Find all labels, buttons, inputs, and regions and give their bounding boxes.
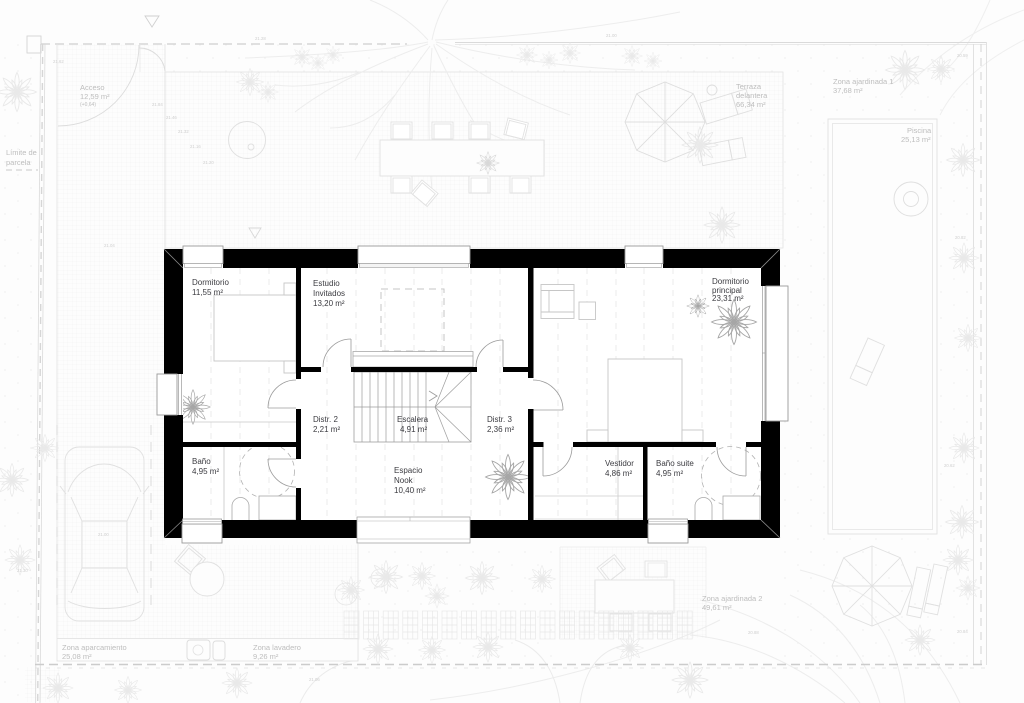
svg-text:Terraza: Terraza	[736, 82, 762, 91]
svg-text:Invitados: Invitados	[313, 289, 345, 298]
svg-text:4,86 m²: 4,86 m²	[605, 469, 632, 478]
svg-text:21.28: 21.28	[255, 36, 266, 41]
svg-text:21.16: 21.16	[190, 144, 201, 149]
svg-text:21.06: 21.06	[309, 677, 320, 682]
svg-text:Distr. 3: Distr. 3	[487, 415, 512, 424]
svg-text:20.62: 20.62	[944, 463, 955, 468]
svg-text:21.30: 21.30	[17, 568, 28, 573]
svg-text:Baño: Baño	[192, 457, 211, 466]
svg-text:delantera: delantera	[736, 91, 768, 100]
svg-text:21.20: 21.20	[203, 160, 214, 165]
svg-text:25,08 m²: 25,08 m²	[62, 652, 92, 661]
svg-text:21.84: 21.84	[152, 102, 163, 107]
svg-text:25,13 m²: 25,13 m²	[901, 135, 931, 144]
svg-text:9,26 m²: 9,26 m²	[253, 652, 279, 661]
svg-text:66,34 m²: 66,34 m²	[736, 100, 766, 109]
svg-text:20.88: 20.88	[748, 630, 759, 635]
svg-text:Dormitorio: Dormitorio	[192, 278, 229, 287]
svg-text:21.00: 21.00	[98, 532, 109, 537]
svg-text:21.00: 21.00	[606, 33, 617, 38]
svg-text:Estudio: Estudio	[313, 279, 340, 288]
svg-text:Dormitorio: Dormitorio	[712, 277, 749, 286]
svg-text:49,61 m²: 49,61 m²	[702, 603, 732, 612]
svg-text:Límite de: Límite de	[6, 148, 37, 157]
svg-text:20.84: 20.84	[957, 629, 968, 634]
svg-text:10,40 m²: 10,40 m²	[394, 486, 426, 495]
svg-text:20.82: 20.82	[955, 235, 966, 240]
svg-text:2,21 m²: 2,21 m²	[313, 425, 340, 434]
svg-text:Zona ajardinada 1: Zona ajardinada 1	[833, 77, 893, 86]
svg-text:21.62: 21.62	[53, 59, 64, 64]
svg-text:11,55 m²: 11,55 m²	[192, 288, 223, 297]
svg-text:4,95 m²: 4,95 m²	[656, 469, 683, 478]
svg-text:4,95 m²: 4,95 m²	[192, 467, 219, 476]
svg-text:Vestidor: Vestidor	[605, 459, 634, 468]
svg-text:Zona ajardinada 2: Zona ajardinada 2	[702, 594, 762, 603]
svg-text:Distr. 2: Distr. 2	[313, 415, 338, 424]
svg-text:parcela: parcela	[6, 158, 31, 167]
svg-text:Nook: Nook	[394, 476, 414, 485]
svg-text:Zona lavadero: Zona lavadero	[253, 643, 301, 652]
svg-text:21.46: 21.46	[166, 115, 177, 120]
svg-text:Baño suite: Baño suite	[656, 459, 694, 468]
svg-text:Escalera: Escalera	[397, 415, 429, 424]
svg-text:37,68 m²: 37,68 m²	[833, 86, 863, 95]
svg-text:2,36 m²: 2,36 m²	[487, 425, 514, 434]
svg-text:21.32: 21.32	[178, 129, 189, 134]
svg-text:(+0,64): (+0,64)	[80, 102, 96, 108]
svg-text:12,59 m²: 12,59 m²	[80, 92, 110, 101]
svg-text:Acceso: Acceso	[80, 83, 105, 92]
svg-text:4,91 m²: 4,91 m²	[400, 425, 427, 434]
svg-text:Zona aparcamiento: Zona aparcamiento	[62, 643, 127, 652]
svg-text:23,31 m²: 23,31 m²	[712, 294, 744, 303]
svg-text:20.59: 20.59	[957, 53, 968, 58]
svg-text:Piscina: Piscina	[907, 126, 932, 135]
svg-text:13,20 m²: 13,20 m²	[313, 299, 345, 308]
svg-text:21.04: 21.04	[104, 243, 115, 248]
svg-text:Espacio: Espacio	[394, 466, 423, 475]
